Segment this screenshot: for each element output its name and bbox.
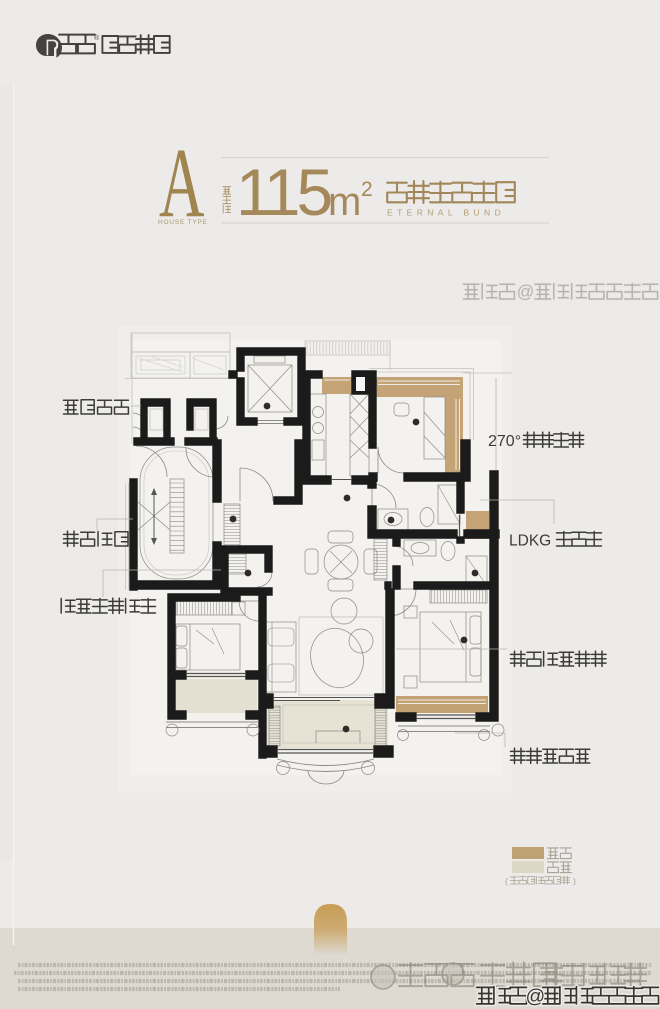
svg-text:ETERNAL BUND: ETERNAL BUND (387, 208, 505, 218)
svg-text:2: 2 (361, 178, 373, 201)
svg-text:m: m (328, 180, 361, 224)
svg-text:HOUSE TYPE: HOUSE TYPE (158, 219, 208, 226)
svg-text:270°: 270° (488, 433, 521, 450)
svg-text:LDKG: LDKG (509, 533, 551, 550)
svg-text:@: @ (517, 282, 535, 302)
svg-text:): ) (573, 876, 576, 886)
svg-text:115: 115 (236, 155, 331, 229)
svg-text:®: ® (94, 34, 100, 42)
svg-text:@: @ (526, 985, 546, 1007)
svg-text:(: ( (505, 876, 508, 886)
